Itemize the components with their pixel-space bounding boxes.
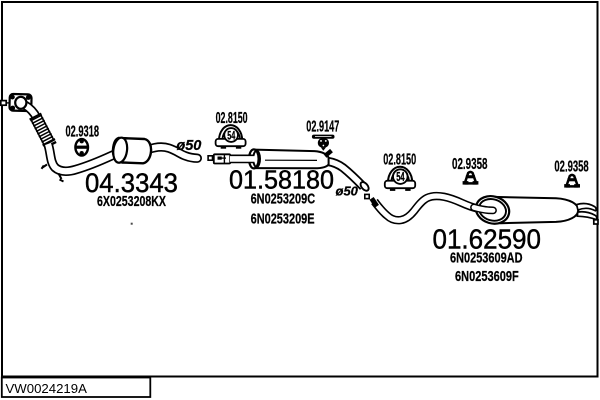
svg-text:01.62590: 01.62590 bbox=[433, 224, 542, 255]
svg-text:02.8150: 02.8150 bbox=[383, 152, 416, 169]
svg-text:54: 54 bbox=[396, 170, 404, 184]
svg-text:ø50: ø50 bbox=[176, 138, 201, 154]
svg-text:VW0024219A: VW0024219A bbox=[6, 381, 88, 396]
svg-text:04.3343: 04.3343 bbox=[85, 168, 178, 198]
svg-text:ø50: ø50 bbox=[336, 183, 359, 198]
svg-text:02.9358: 02.9358 bbox=[452, 156, 488, 173]
svg-text:02.9318: 02.9318 bbox=[66, 123, 100, 140]
svg-text:02.9358: 02.9358 bbox=[554, 159, 588, 176]
svg-text:54: 54 bbox=[227, 128, 235, 142]
svg-text:02.8150: 02.8150 bbox=[216, 110, 248, 127]
svg-text:6N0253609F: 6N0253609F bbox=[455, 268, 519, 285]
svg-text:02.9147: 02.9147 bbox=[306, 119, 339, 136]
svg-text:6N0253209E: 6N0253209E bbox=[251, 210, 315, 227]
svg-text:01.58180: 01.58180 bbox=[229, 166, 334, 194]
